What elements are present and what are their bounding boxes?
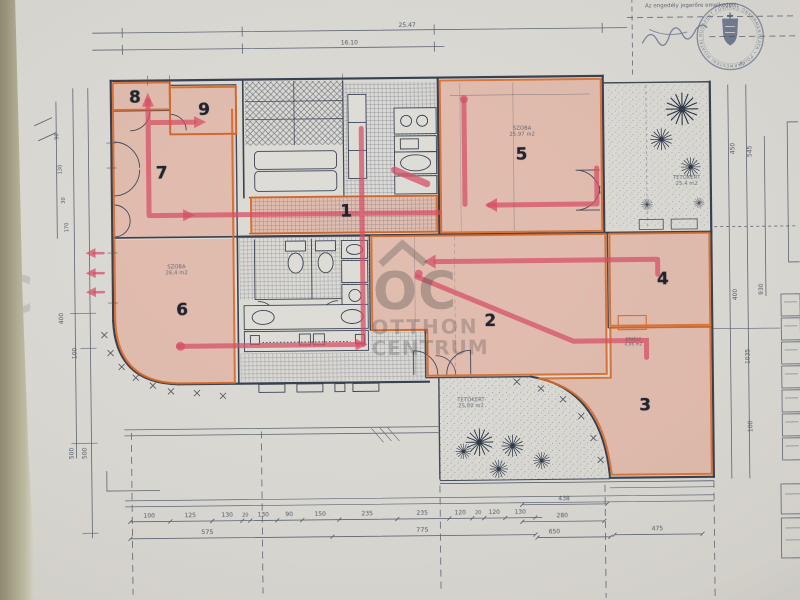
svg-text:BUDAPEST FŐVÁROS ÖNKORMÁNYZATA: BUDAPEST FŐVÁROS ÖNKORMÁNYZATA • POLGÁRM… [0, 0, 763, 76]
dim-rl1: 280 [557, 512, 569, 519]
dim-b7: 235 [361, 510, 373, 517]
dim-l4: 90 [54, 133, 60, 139]
terrace-top-label: TETŐKERT 25,4 m2 [673, 176, 701, 188]
room-7-label: 7 [156, 163, 168, 183]
dim-b9: 120 [454, 509, 466, 516]
room-6-note: SZOBA 26,4 m2 [166, 265, 188, 277]
room-5-note: SZOBA 25,97 m2 [509, 127, 535, 139]
dim-r0: 450 [729, 143, 736, 155]
stamp-number: 87. [740, 61, 747, 67]
dim-l2: 500 [69, 447, 76, 459]
dim-r1: 545 [746, 145, 753, 157]
room-8-area [113, 82, 170, 110]
terrace-top-area: 25,4 m2 [673, 182, 700, 188]
dim-rl2: 650 [549, 528, 561, 535]
dim-b10: 20 [475, 510, 481, 516]
watermark-centrum: CENTRUM [371, 335, 489, 360]
dim-b1: 125 [184, 512, 196, 519]
dim-rl3: 475 [652, 525, 664, 532]
terrace-bottom-label: TETŐKERT 25,80 m2 [457, 398, 485, 410]
dim-b6: 150 [314, 511, 326, 518]
dim-b2: 130 [221, 512, 233, 519]
terrace-bottom-area: 25,80 m2 [457, 404, 484, 410]
room-6-label: 6 [176, 300, 188, 320]
dim-l0: 400 [58, 313, 65, 325]
floorplan-photo: BUDAPEST FŐVÁROS ÖNKORMÁNYZATA • POLGÁRM… [0, 0, 800, 600]
stamp-approval-text: Az engedély jogerőre emelkedett: [645, 1, 738, 9]
dim-l3: 500 [82, 447, 89, 459]
dim-b4: 130 [257, 511, 269, 518]
dim-r2: 400 [732, 289, 739, 301]
dim-b2-0: 575 [201, 528, 214, 536]
dim-b12: 130 [514, 509, 526, 516]
plan-drawing: BUDAPEST FŐVÁROS ÖNKORMÁNYZATA • POLGÁRM… [0, 0, 800, 600]
dim-r5: 100 [747, 420, 754, 432]
dim-b3: 20 [242, 513, 248, 519]
seal-text: BUDAPEST FŐVÁROS ÖNKORMÁNYZATA • POLGÁRM… [0, 0, 763, 76]
dim-b0: 100 [143, 513, 155, 520]
official-stamp: BUDAPEST FŐVÁROS ÖNKORMÁNYZATA • POLGÁRM… [0, 0, 764, 77]
watermark-oc: OC [373, 261, 458, 322]
room-3-note: ERKÉLY 4,06 m2 [624, 337, 642, 346]
room-5-note-area: 25,97 m2 [509, 132, 535, 138]
room-3-note-area: 4,06 m2 [624, 342, 642, 347]
dim-b2-1: 775 [416, 526, 429, 534]
dim-l5: 130 [58, 165, 64, 175]
dim-b11: 120 [488, 509, 500, 516]
room-2-label: 2 [484, 311, 496, 331]
dim-rl0: 438 [558, 495, 570, 502]
dim-r4: 1035 [745, 349, 752, 365]
room-6-note-area: 26,4 m2 [166, 271, 188, 277]
dim-l7: 170 [64, 223, 70, 233]
room-5-label: 5 [515, 145, 527, 165]
room-4-label: 4 [657, 269, 669, 289]
dim-r3: 930 [758, 283, 765, 295]
title-block-boxes [777, 122, 800, 558]
coat-of-arms-icon [722, 12, 738, 45]
dim-top-2: 16.10 [341, 39, 358, 46]
dim-top-1: 25.47 [398, 22, 415, 29]
dim-b8: 235 [416, 510, 428, 517]
room-6-area [114, 239, 235, 384]
room-9-label: 9 [198, 100, 210, 120]
room-1-label: 1 [340, 201, 352, 221]
room-3-label: 3 [639, 395, 651, 415]
dim-l1: 100 [71, 347, 78, 359]
dim-l6: 30 [61, 197, 67, 203]
room-8-label: 8 [129, 88, 141, 108]
dim-b5: 90 [285, 511, 293, 518]
